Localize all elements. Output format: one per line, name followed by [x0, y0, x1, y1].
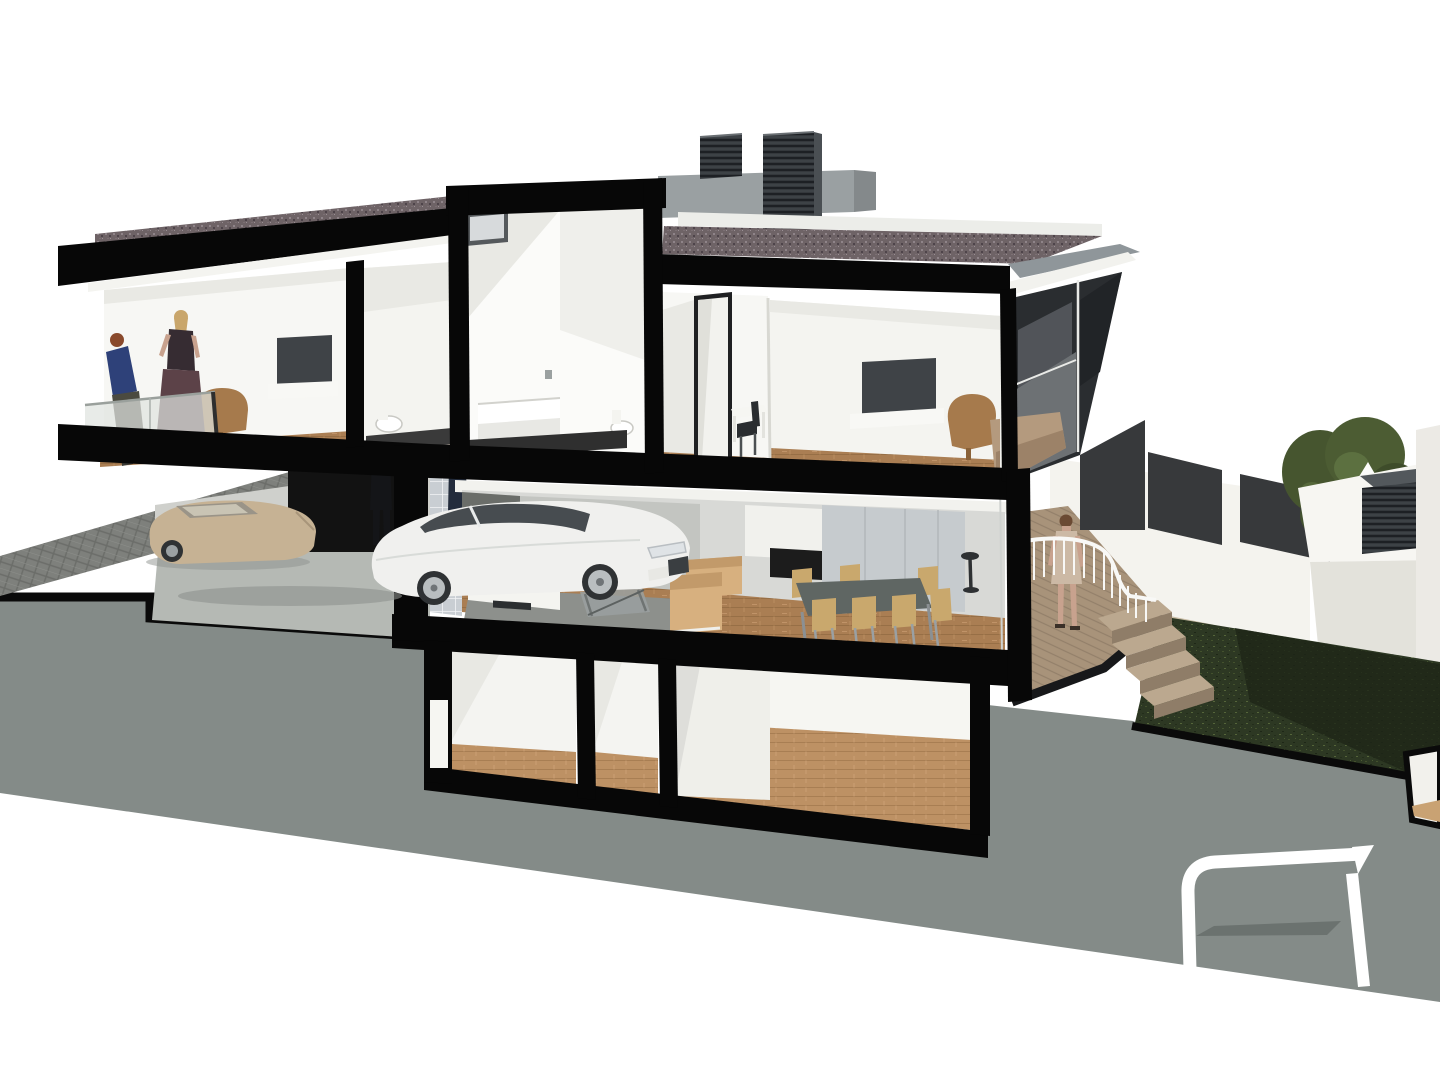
neighbor-basement-cut	[1406, 748, 1440, 826]
tv-shelf-left	[268, 381, 338, 399]
wall-cut-right-end	[1000, 288, 1018, 482]
wall-cut-ground-right	[1006, 468, 1032, 702]
bedroom-right	[768, 298, 1002, 480]
wall-switch	[545, 370, 552, 379]
section-canvas	[0, 0, 1440, 1080]
hallway	[662, 292, 768, 472]
basement-window	[430, 700, 448, 768]
tv-panel-left	[277, 335, 332, 386]
basement-mullion-1	[576, 652, 596, 800]
bathroom-center	[466, 204, 645, 458]
car-shadow-white	[178, 586, 402, 606]
rear-parapet-end	[854, 170, 876, 212]
tv-panel-right	[862, 358, 936, 416]
car-beige	[150, 500, 317, 564]
basement-mullion-2	[658, 658, 678, 808]
architectural-section-render	[0, 0, 1440, 1080]
bathroom-left	[364, 262, 452, 452]
wall-cut-tower-right	[643, 178, 664, 474]
basement-room-2	[594, 660, 658, 794]
armchair-right-leg	[966, 448, 971, 460]
wall-cut-bedroom-bath	[346, 260, 364, 448]
rear-parapet	[658, 170, 854, 218]
hallway-wall-wedge	[662, 300, 694, 470]
chimney-small	[700, 134, 742, 179]
basement-wall-right	[970, 656, 990, 836]
mirror-door	[694, 292, 732, 466]
armchair-right	[948, 394, 996, 450]
basement-room-1	[452, 650, 576, 786]
hall-bedroom-divider	[768, 298, 770, 464]
wall-cut-tower-left	[448, 186, 470, 462]
skylight	[466, 210, 508, 246]
